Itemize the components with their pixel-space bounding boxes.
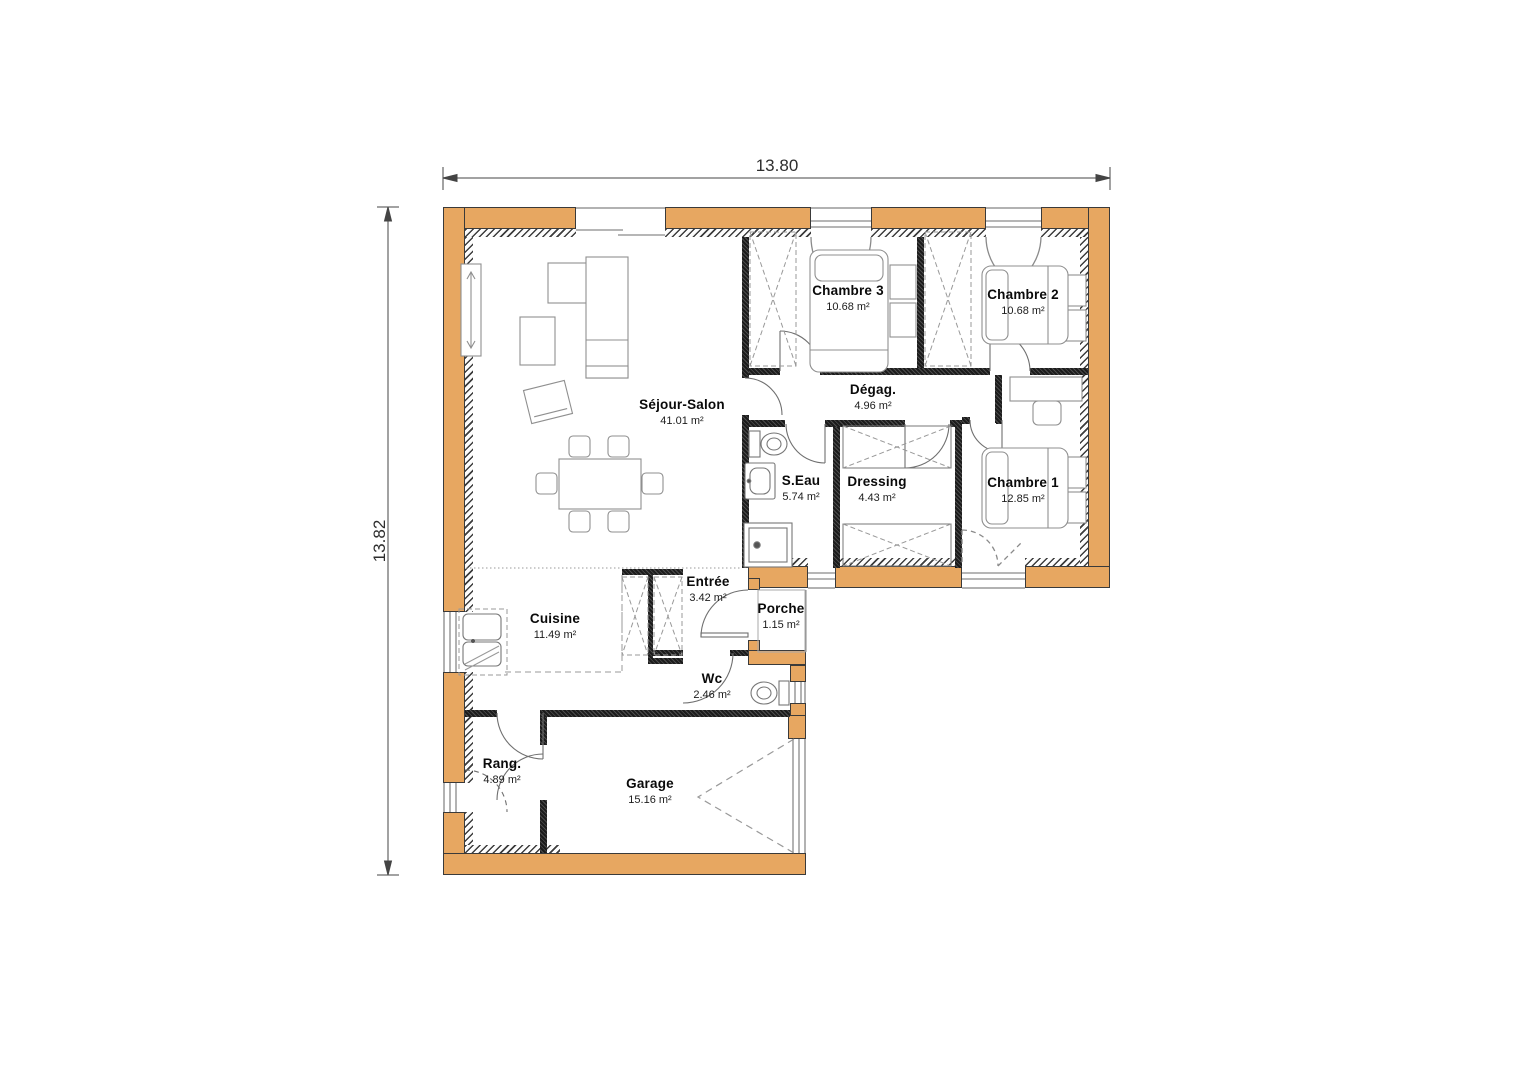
partition-wall [742,237,749,378]
room-area: 1.15 m² [758,618,805,632]
dimension-width-label: 13.80 [756,156,799,176]
closet-chambre-3 [750,232,796,366]
partition-wall [955,423,962,568]
room-label-degag: Dégag. 4.96 m² [850,381,896,413]
room-area: 4.96 m² [850,399,896,413]
room-label-entree: Entrée 3.42 m² [686,573,729,605]
window-leaf-arc [1013,237,1041,284]
room-name: Chambre 2 [987,286,1059,304]
room-name: Cuisine [530,610,580,628]
partition-wall [540,717,547,745]
partition-wall [749,420,785,427]
partition-wall [540,710,790,717]
sofa [548,257,628,378]
window-leaf-arc [986,237,1013,284]
toilet-seau [749,431,787,457]
floor-plan-canvas: Séjour-Salon 41.01 m² Chambre 3 10.68 m²… [0,0,1527,1080]
closet-wall [648,658,683,664]
partition-wall [962,417,970,424]
partition-wall [540,800,547,853]
exterior-wall-segment [1088,207,1110,588]
seau-door [786,424,825,463]
insulation-hatch [465,812,473,845]
room-label-porche: Porche 1.15 m² [758,600,805,632]
partition-wall [996,417,1002,424]
dressing-door [905,424,949,468]
rang-door [497,713,543,759]
partition-wall [820,368,990,375]
room-area: 4.43 m² [847,491,906,505]
room-name: Garage [626,775,674,793]
porch-wall [748,650,806,665]
insulation-hatch [749,558,808,566]
kitchen-sink [459,609,507,675]
room-area: 11.49 m² [530,628,580,642]
room-label-garage: Garage 15.16 m² [626,775,674,807]
exterior-wall-segment [835,566,962,588]
coffee-table [524,380,573,423]
insulation-hatch [835,558,962,566]
garage-door [698,739,805,853]
chambre3-door [780,331,820,371]
room-area: 41.01 m² [639,414,725,428]
partition-wall [465,710,497,717]
room-area: 2.46 m² [693,688,730,702]
insulation-hatch [871,229,986,237]
room-label-chambre1: Chambre 1 12.85 m² [987,474,1059,506]
exterior-wall-segment [790,665,806,682]
exterior-wall-segment [443,672,465,783]
partition-wall [749,368,780,375]
partition-wall [950,420,962,427]
room-name: Wc [693,670,730,688]
room-label-chambre3: Chambre 3 10.68 m² [812,282,884,314]
insulation-hatch [465,229,576,237]
chambre1-door [970,420,1002,452]
room-name: S.Eau [782,472,821,490]
room-area: 10.68 m² [987,304,1059,318]
insulation-hatch [665,229,811,237]
exterior-wall-segment [443,207,465,612]
room-name: Rang. [483,755,522,773]
room-name: Séjour-Salon [639,396,725,414]
room-area: 3.42 m² [686,591,729,605]
exterior-wall-segment [1025,566,1110,588]
partition-wall [730,650,748,656]
dimension-height-label: 13.82 [370,520,390,563]
room-name: Dressing [847,473,906,491]
partition-wall [917,237,924,368]
closet-chambre-2 [925,232,971,366]
room-area: 10.68 m² [812,300,884,314]
side-table [520,317,555,365]
room-name: Entrée [686,573,729,591]
insulation-hatch [1080,237,1088,566]
insulation-hatch [1041,229,1088,237]
room-label-dressing: Dressing 4.43 m² [847,473,906,505]
insulation-hatch [465,237,473,612]
insulation-hatch [1025,558,1080,566]
room-name: Porche [758,600,805,618]
chambre2-door [990,331,1030,371]
room-label-rang: Rang. 4.89 m² [483,755,522,787]
partition-wall [742,415,749,568]
room-label-chambre2: Chambre 2 10.68 m² [987,286,1059,318]
room-name: Chambre 3 [812,282,884,300]
exterior-wall-segment [443,853,806,875]
desk-chambre-1 [1010,377,1082,425]
room-label-seau: S.Eau 5.74 m² [782,472,821,504]
room-label-cuisine: Cuisine 11.49 m² [530,610,580,642]
dining-set [536,436,663,532]
room-label-wc: Wc 2.46 m² [693,670,730,702]
partition-wall [833,427,840,568]
partition-wall [995,375,1002,423]
vanity-sink [745,463,775,499]
closet-wall [648,575,653,660]
room-area: 12.85 m² [987,492,1059,506]
room-area: 15.16 m² [626,793,674,807]
exterior-wall-segment [788,715,806,739]
room-area: 5.74 m² [782,490,821,504]
exterior-wall-segment [665,207,811,229]
partition-wall [1030,368,1088,375]
room-label-sejour: Séjour-Salon 41.01 m² [639,396,725,428]
insulation-hatch [465,672,473,783]
room-area: 4.89 m² [483,773,522,787]
room-name: Dégag. [850,381,896,399]
partition-wall [825,420,905,427]
partition-wall [653,650,683,656]
porch-wall [748,578,760,590]
exterior-wall-segment [871,207,986,229]
room-name: Chambre 1 [987,474,1059,492]
toilet-wc [751,681,789,705]
sejour-degag-door-arc [745,378,782,415]
